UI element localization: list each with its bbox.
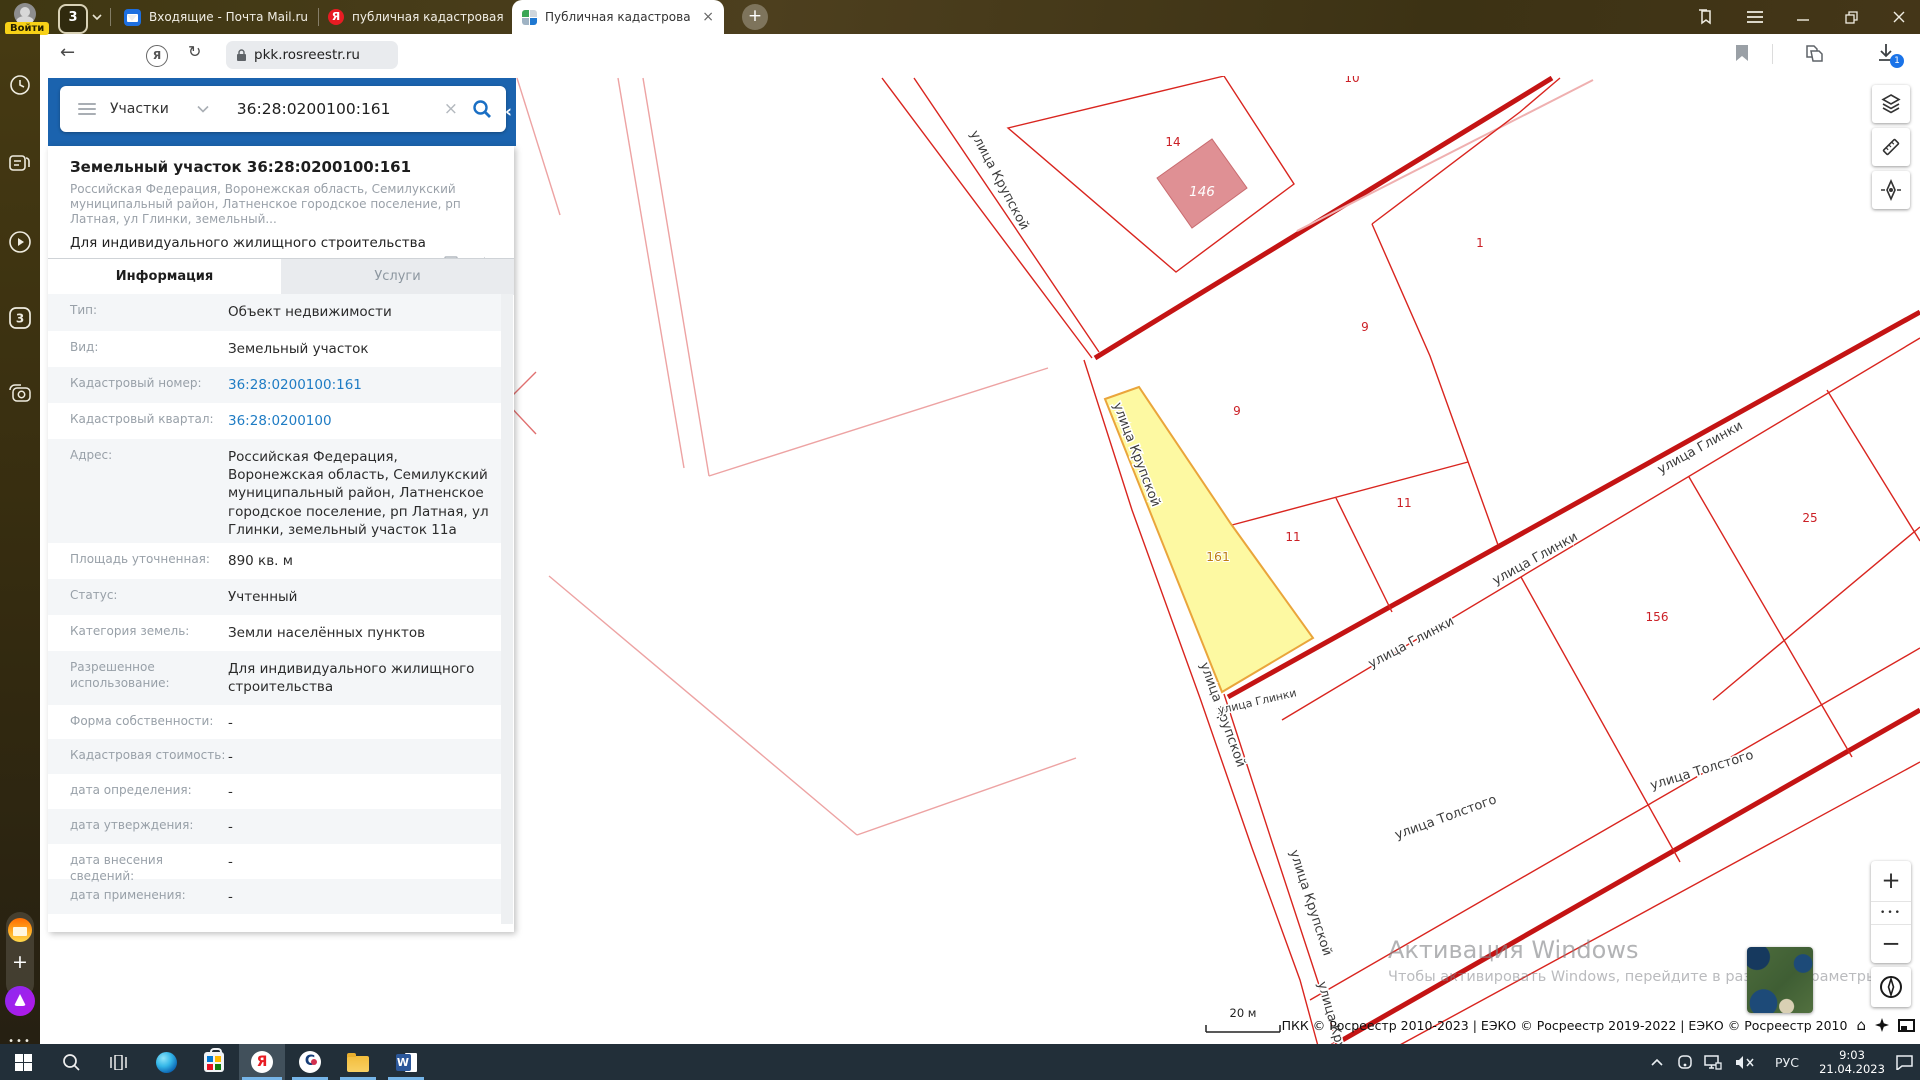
identify-point-button[interactable] [1872,171,1910,209]
back-button[interactable]: ← [60,42,75,63]
table-row: Статус:Учтенный [48,579,501,615]
street-label: улица Глинки [1490,529,1580,588]
street-label: улица Глинки [1217,686,1298,717]
cadastral-block-link[interactable]: 36:28:0200100 [228,412,490,439]
row-label: Тип: [70,303,228,331]
file-explorer-icon[interactable] [338,1044,378,1080]
ms-store-icon[interactable] [194,1044,234,1080]
mail-icon [124,9,141,26]
row-label: Адрес: [70,448,228,543]
parcel-number: 1 [1476,236,1484,250]
screenshot-icon[interactable] [0,382,40,408]
yandex-services-icon[interactable]: Я [146,45,168,67]
zoom-out-button[interactable]: − [1871,925,1911,963]
parcel-lines [882,76,1920,1046]
download-badge: 1 [1890,54,1904,68]
row-label: Форма собственности: [70,714,228,739]
cadastral-number-link[interactable]: 36:28:0200100:161 [228,376,490,403]
clear-icon[interactable]: × [444,99,458,119]
clock[interactable]: 9:03 21.04.2023 [1815,1044,1889,1080]
row-value: Объект недвижимости [228,303,490,331]
zoom-controls: + ••• − [1871,861,1911,963]
home-icon[interactable]: ⌂ [1856,1018,1866,1032]
parcel-address-short: Российская Федерация, Воронежская област… [70,182,490,227]
browser-sidebar: 3 + ••• [0,34,40,1044]
watermark-title: Активация Windows [1388,936,1889,964]
reload-button[interactable]: ↻ [188,42,201,61]
tray-expand-icon[interactable] [1644,1044,1670,1080]
windows-taskbar: Я C W РУС 9:03 21.04.2023 [0,1044,1920,1080]
fullscreen-icon[interactable] [1898,1019,1915,1032]
scrollbar[interactable] [501,294,513,924]
parcel-number: 14 [1165,135,1180,149]
yandex-mail-icon[interactable] [8,918,32,942]
road-casing [1297,80,1593,231]
search-box: Участки × [60,86,506,132]
row-value: 890 кв. м [228,552,490,579]
row-value: Земли населённых пунктов [228,624,490,651]
play-icon[interactable] [0,230,40,258]
table-row: Кадастровая стоимость:- [48,739,501,774]
yandex-browser-taskbar-icon[interactable]: Я [239,1044,285,1080]
building-number: 146 [1189,184,1215,200]
browser-tab-bar: Войти 3 Входящие - Почта Mail.ru Я публи… [0,0,1920,34]
start-button[interactable] [3,1044,43,1080]
street-label: улица Крупской [1286,848,1334,958]
new-tab-button[interactable]: + [742,4,768,30]
search-icon[interactable] [472,99,492,119]
panel-tabs: Информация Услуги [48,258,514,295]
tab-yandex-search[interactable]: Я публичная кадастровая ка [328,0,506,34]
divider [318,8,319,26]
action-center-icon[interactable] [1890,1044,1918,1080]
scale-bar: 20 м [1203,1006,1283,1039]
tabs-count-icon[interactable]: 3 [0,306,40,334]
parcel-number: 11 [1285,530,1300,544]
history-icon[interactable] [0,74,40,100]
street-label: улица Глинки [1655,418,1745,477]
measure-ruler-button[interactable] [1872,128,1910,166]
word-icon[interactable]: W [386,1044,426,1080]
table-row: дата применения:- [48,879,501,914]
row-value: - [228,748,490,774]
bookmark-flag-icon[interactable] [1735,44,1749,66]
row-label: Статус: [70,588,228,615]
map-attribution: ПКК © Росреестр 2010-2023 | ЕЭКО © Росре… [1282,1014,1915,1036]
taskbar-search-icon[interactable] [51,1044,91,1080]
parcel-number: 9 [1361,320,1369,334]
tab-information[interactable]: Информация [48,259,281,295]
kontur-app-icon[interactable]: C [290,1044,330,1080]
row-label: дата применения: [70,888,228,914]
tab-mail[interactable]: Входящие - Почта Mail.ru [124,0,310,34]
row-label: дата утверждения: [70,818,228,844]
svg-text:3: 3 [16,312,24,326]
url-text: pkk.rosreestr.ru [254,47,360,63]
close-button[interactable] [1882,0,1916,34]
street-label: улица Толстого [1649,748,1756,794]
row-value: - [228,783,490,809]
street-label: улица Крупской [967,128,1032,233]
parcel-title: Земельный участок 36:28:0200100:161 [70,158,500,176]
info-table: Тип:Объект недвижимости Вид:Земельный уч… [48,294,501,914]
parcel-usage: Для индивидуального жилищного строительс… [70,235,500,251]
parcel-number: 11 [1396,496,1411,510]
restore-button[interactable] [1834,0,1868,34]
lock-icon [236,49,247,62]
browser-toolbar: ← Я ↻ pkk.rosreestr.ru 1 [40,34,1920,76]
time: 9:03 [1815,1048,1889,1062]
row-value: Для индивидуального жилищного строительс… [228,660,490,705]
collapse-panel-icon[interactable]: ‹ [505,102,512,122]
row-value: - [228,818,490,844]
date: 21.04.2023 [1815,1062,1889,1076]
divider [1772,44,1773,64]
street-label: улица Глинки [1366,614,1457,672]
row-label: Вид: [70,340,228,367]
row-value: Земельный участок [228,340,490,367]
language-indicator[interactable]: РУС [1766,1044,1808,1080]
table-row: Тип:Объект недвижимости [48,294,501,331]
search-category-select[interactable]: Участки [110,101,169,117]
task-view-icon[interactable] [98,1044,138,1080]
edge-icon[interactable] [146,1044,186,1080]
zoom-in-button[interactable]: + [1871,861,1911,901]
minimize-button[interactable] [1786,0,1820,34]
menu-icon[interactable] [1738,0,1772,34]
divider [110,8,111,26]
street-label: улица Толстого [1393,792,1499,843]
parcel-info-panel: Земельный участок 36:28:0200100:161 Росс… [48,146,514,932]
notes-icon[interactable] [0,152,40,178]
download-icon[interactable]: 1 [1876,42,1904,68]
windows-activation-watermark: Активация Windows Чтобы активировать Win… [1388,936,1889,985]
table-row: Разрешенное использование:Для индивидуал… [48,651,501,705]
alice-assistant-icon[interactable] [5,986,35,1016]
search-input[interactable] [235,99,444,119]
row-value: - [228,888,490,914]
table-row: дата определения:- [48,774,501,809]
tab-title: Входящие - Почта Mail.ru [149,10,308,24]
scale-label: 20 м [1203,1006,1283,1020]
table-row: дата внесения сведений:- [48,844,501,879]
locate-compass-button[interactable] [1871,967,1911,1007]
row-label: дата определения: [70,783,228,809]
menu-icon[interactable] [78,103,96,115]
tab-pkk-active[interactable]: Публичная кадастрова × [512,0,724,34]
row-label: Категория земель: [70,624,228,651]
row-value: Учтенный [228,588,490,615]
add-panel-button[interactable]: + [8,950,32,974]
tablet-mode-icon[interactable] [1672,1044,1698,1080]
volume-muted-icon[interactable] [1730,1044,1758,1080]
parcel-number: 25 [1802,511,1817,525]
table-row: Категория земель:Земли населённых пункто… [48,615,501,651]
tab-title: Публичная кадастрова [545,10,694,24]
table-row: Форма собственности:- [48,705,501,739]
tab-counter-button[interactable]: 3 [58,4,88,34]
parcel-number: 9 [1233,404,1241,418]
yandex-icon: Я [328,9,344,25]
row-label: Кадастровый номер: [70,376,228,403]
parcel-number: 156 [1646,610,1669,624]
close-icon[interactable]: × [702,9,714,25]
row-label: Разрешенное использование: [70,660,228,705]
table-row: Вид:Земельный участок [48,331,501,367]
row-label: Кадастровый квартал: [70,412,228,439]
table-row: Кадастровый номер:36:28:0200100:161 [48,367,501,403]
tab-title: публичная кадастровая ка [352,10,506,24]
bookmarks-icon[interactable] [1688,0,1722,34]
row-value: - [228,853,490,879]
chevron-down-icon[interactable] [197,105,209,113]
row-value: - [228,714,490,739]
search-header: Участки × ‹ [48,78,516,146]
network-icon[interactable] [1700,1044,1726,1080]
watermark-subtitle: Чтобы активировать Windows, перейдите в … [1388,969,1889,985]
compass-star-icon[interactable] [1875,1018,1889,1032]
more-tools-button[interactable]: ••• [1871,901,1911,925]
table-row: Адрес:Российская Федерация, Воронежская … [48,439,501,543]
table-row: дата утверждения:- [48,809,501,844]
layers-button[interactable] [1872,85,1910,123]
result-card: Земельный участок 36:28:0200100:161 Росс… [48,146,514,275]
attribution-text: ПКК © Росреестр 2010-2023 | ЕЭКО © Росре… [1282,1018,1848,1033]
collections-icon[interactable] [1802,43,1824,67]
tab-services[interactable]: Услуги [281,259,514,295]
row-label: Площадь уточненная: [70,552,228,579]
table-row: Кадастровый квартал:36:28:0200100 [48,403,501,439]
row-label: дата внесения сведений: [70,853,228,879]
row-label: Кадастровая стоимость: [70,748,228,774]
selected-parcel-number: 161 [1206,549,1230,564]
chevron-down-icon[interactable] [92,12,102,22]
table-row: Площадь уточненная:890 кв. м [48,543,501,579]
address-bar[interactable]: pkk.rosreestr.ru [226,41,398,69]
row-value: Российская Федерация, Воронежская област… [228,448,490,543]
rosreestr-icon [522,10,537,25]
overview-minimap[interactable] [1747,947,1813,1013]
